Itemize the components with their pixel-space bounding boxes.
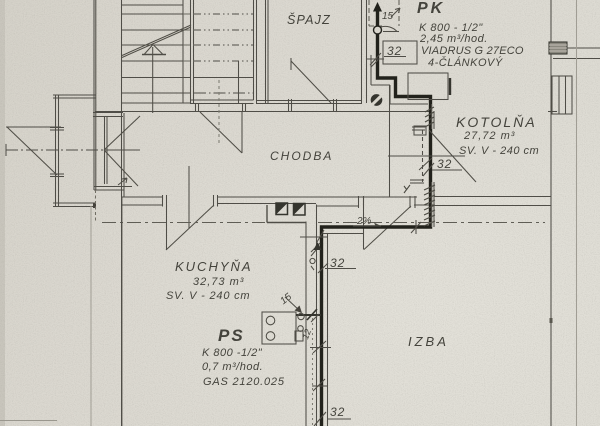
svg-text:32: 32 — [437, 157, 452, 171]
svg-text:CHODBA: CHODBA — [270, 149, 333, 163]
svg-text:K 800 -1/2": K 800 -1/2" — [202, 347, 263, 359]
svg-text:15: 15 — [382, 11, 394, 22]
svg-text:27,72 m³: 27,72 m³ — [463, 130, 515, 142]
svg-text:VIADRUS G 27ECO: VIADRUS G 27ECO — [421, 45, 524, 57]
svg-text:GAS 2120.025: GAS 2120.025 — [203, 376, 285, 388]
svg-text:32: 32 — [330, 256, 345, 270]
svg-text:SV. V - 240 cm: SV. V - 240 cm — [166, 290, 250, 302]
svg-text:PS: PS — [218, 326, 245, 345]
svg-text:KUCHYŇA: KUCHYŇA — [175, 259, 253, 274]
svg-text:ŠPAJZ: ŠPAJZ — [287, 12, 331, 27]
svg-text:32: 32 — [387, 44, 402, 58]
svg-text:32,73 m³: 32,73 m³ — [193, 276, 244, 288]
svg-text:0,7 m³/hod.: 0,7 m³/hod. — [202, 361, 263, 373]
svg-text:32: 32 — [330, 405, 345, 419]
svg-text:4-ČLÁNKOVÝ: 4-ČLÁNKOVÝ — [428, 56, 503, 69]
svg-text:SV. V - 240 cm: SV. V - 240 cm — [459, 145, 539, 157]
svg-text:PK: PK — [417, 0, 445, 17]
svg-text:IZBA: IZBA — [408, 334, 449, 349]
svg-text:KOTOLŇA: KOTOLŇA — [456, 114, 537, 130]
svg-text:2%: 2% — [356, 216, 372, 227]
svg-text:2,45 m³/hod.: 2,45 m³/hod. — [419, 33, 488, 45]
